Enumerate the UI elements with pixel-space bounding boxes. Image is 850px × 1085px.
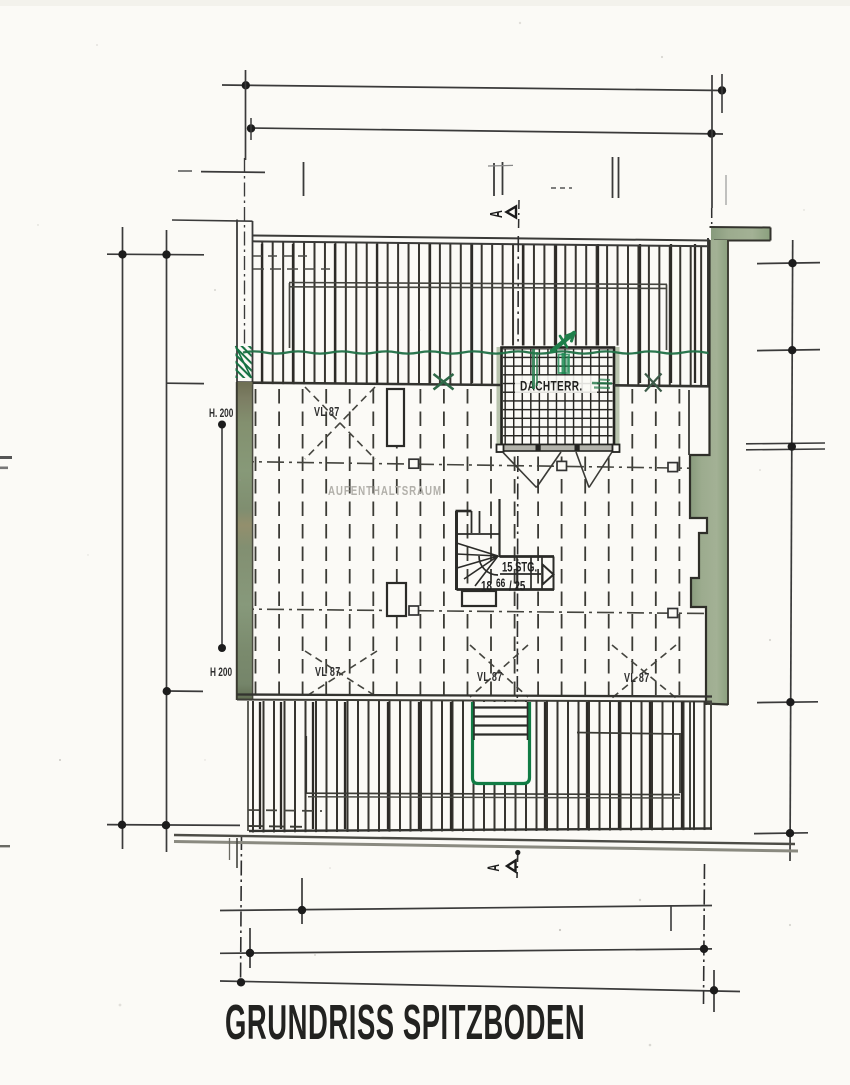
svg-text:DACHTERR.: DACHTERR.: [520, 378, 583, 394]
svg-text:VL 87: VL 87: [314, 406, 340, 420]
svg-text:VL 87: VL 87: [624, 672, 650, 686]
svg-text:A: A: [483, 864, 502, 871]
svg-text:66: 66: [496, 578, 506, 591]
svg-text:18: 18: [481, 578, 492, 594]
svg-text:GRUNDRISS SPITZBODEN: GRUNDRISS SPITZBODEN: [225, 996, 585, 1050]
svg-text:/ 25: / 25: [509, 578, 526, 594]
svg-text:H 200: H 200: [210, 667, 232, 680]
svg-text:VL 87: VL 87: [477, 671, 503, 685]
svg-text:AUFENTHALTSRAUM: AUFENTHALTSRAUM: [328, 485, 442, 499]
svg-text:15 STG.: 15 STG.: [502, 560, 537, 575]
svg-text:VL 87: VL 87: [315, 666, 341, 680]
svg-text:A: A: [487, 210, 506, 218]
svg-text:H. 200: H. 200: [209, 408, 234, 421]
